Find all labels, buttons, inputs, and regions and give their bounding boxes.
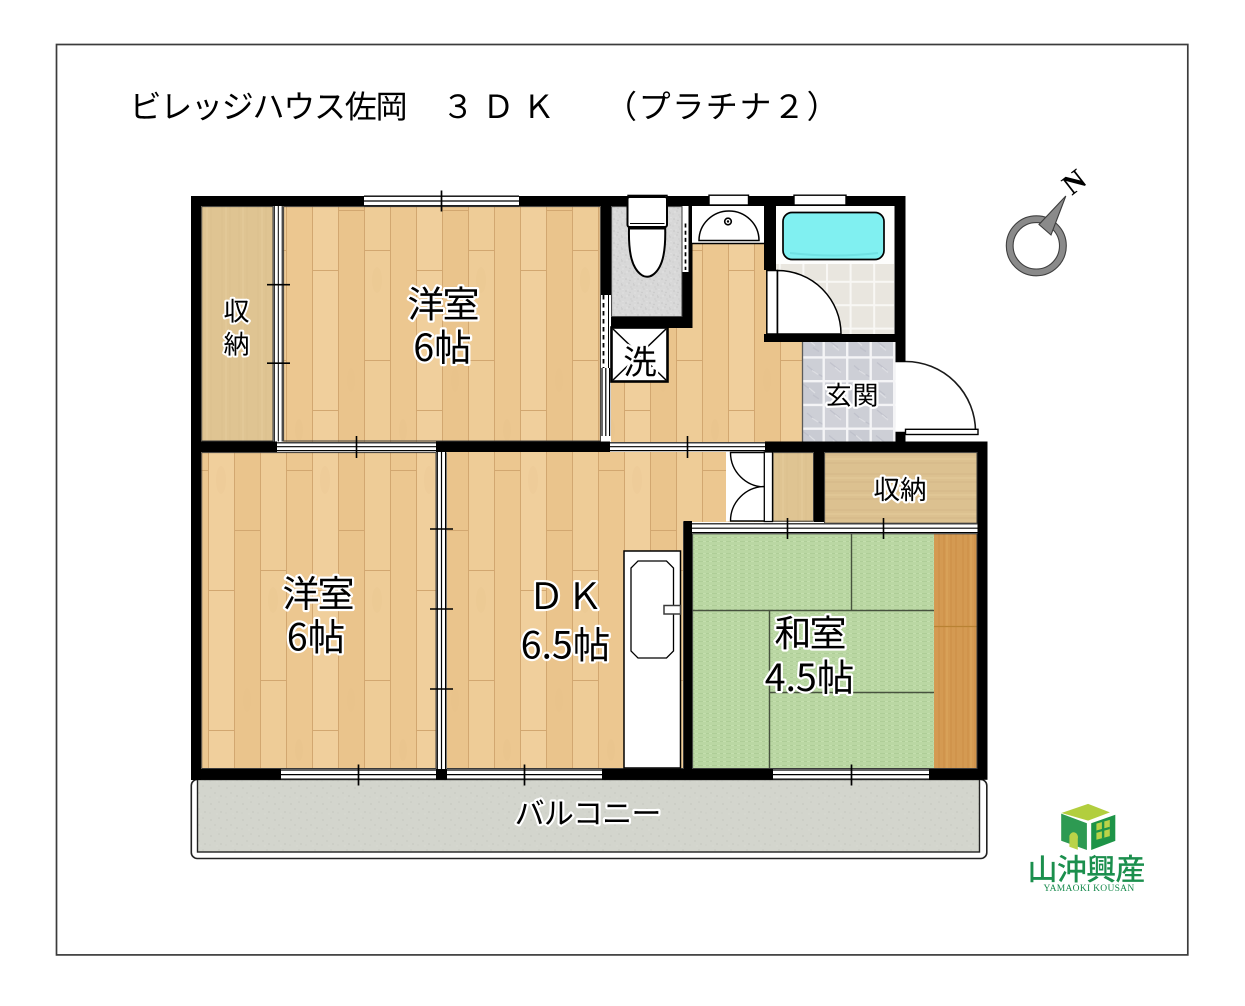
svg-text:YAMAOKI KOUSAN: YAMAOKI KOUSAN <box>1043 884 1134 894</box>
